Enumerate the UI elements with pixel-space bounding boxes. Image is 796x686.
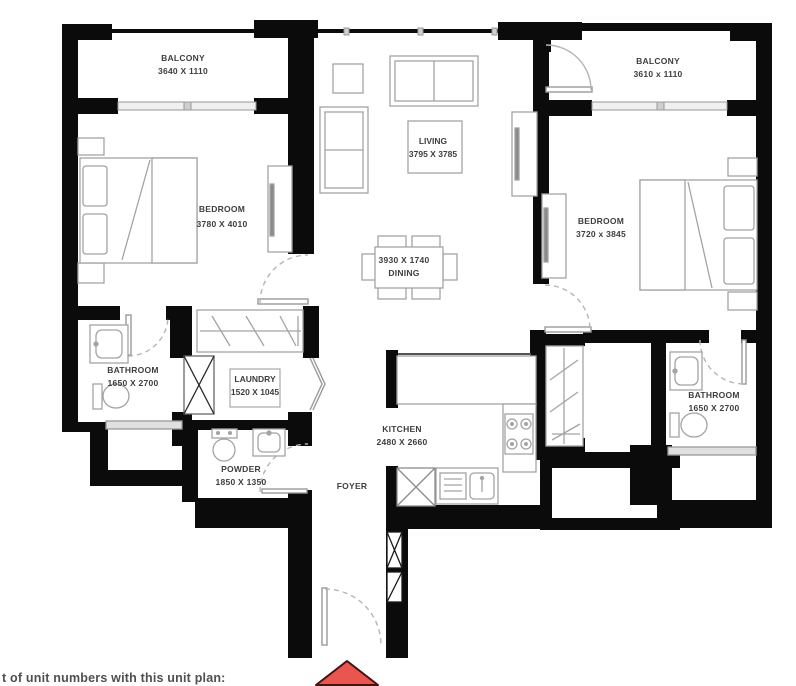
room-name: BEDROOM (197, 202, 248, 217)
room-name: FOYER (337, 480, 368, 493)
window-mullion (492, 28, 497, 35)
room-label-powder: POWDER 1850 X 1350 (216, 463, 267, 489)
room-label-dining: 3930 X 1740 DINING (379, 254, 430, 280)
door-bathroom-left (126, 315, 168, 356)
room-dims: 1650 X 2700 (688, 402, 739, 415)
room-label-living: LIVING 3795 X 3785 (409, 135, 457, 161)
room-dims: 3795 X 3785 (409, 148, 457, 161)
window-mullion (344, 28, 349, 35)
room-dims: 1650 X 2700 (107, 377, 158, 390)
door-laundry-bifold (310, 358, 325, 410)
room-label-bathroom-right: BATHROOM 1650 X 2700 (688, 389, 739, 415)
dresser-tv-icon-right (542, 194, 566, 278)
shower-screen-left (106, 421, 182, 429)
fridge-icon (397, 468, 435, 506)
toilet-icon-bathroom-right (670, 413, 707, 437)
room-name: LIVING (409, 135, 457, 148)
room-label-laundry: LAUNDRY 1520 X 1045 (231, 373, 279, 399)
footer-note: t of unit numbers with this unit plan: (2, 670, 226, 686)
sink-icon-powder (253, 429, 285, 456)
window-mullion (418, 28, 423, 35)
room-label-foyer: FOYER (337, 480, 368, 493)
room-name: BALCONY (633, 55, 682, 68)
room-name: BALCONY (158, 52, 208, 65)
room-name: LAUNDRY (231, 373, 279, 386)
bed-icon-right (640, 158, 757, 310)
room-name: BEDROOM (576, 215, 626, 228)
room-dims: 1520 X 1045 (231, 386, 279, 399)
room-dims: 2480 X 2660 (377, 436, 428, 449)
sink-icon-bathroom-right (670, 352, 702, 390)
dresser-tv-icon-left (268, 166, 292, 252)
walls-layer (62, 20, 772, 658)
shower-screen-right (668, 447, 756, 455)
wardrobe-icon (546, 346, 583, 446)
room-label-bedroom-left: BEDROOM 3780 X 4010 (197, 202, 248, 232)
room-name: DINING (379, 267, 430, 280)
room-name: BATHROOM (107, 364, 158, 377)
toilet-icon-powder (212, 429, 237, 461)
sink-icon-bathroom-left (90, 325, 128, 363)
floorplan: BALCONY 3640 X 1110 BALCONY 3610 x 1110 … (0, 0, 796, 686)
washer-icon (184, 356, 214, 414)
room-dims: 1850 X 1350 (216, 476, 267, 489)
door-bathroom-right (700, 340, 746, 384)
room-name: KITCHEN (377, 423, 428, 436)
room-dims: 3780 X 4010 (197, 217, 248, 232)
room-dims: 3640 X 1110 (158, 65, 208, 78)
door-bedroom-right (545, 285, 591, 332)
room-name: POWDER (216, 463, 267, 476)
shaft-icon (387, 532, 402, 602)
tv-unit-icon-living (512, 112, 537, 196)
room-dims: 3930 X 1740 (379, 254, 430, 267)
floorplan-canvas (0, 0, 796, 686)
side-table-icon (333, 64, 363, 93)
room-label-bedroom-right: BEDROOM 3720 x 3845 (576, 215, 626, 241)
entry-arrow-icon (316, 661, 378, 685)
door-balcony-right (546, 45, 592, 92)
room-label-balcony-left: BALCONY 3640 X 1110 (158, 52, 208, 78)
room-dims: 3610 x 1110 (633, 68, 682, 81)
room-label-bathroom-left: BATHROOM 1650 X 2700 (107, 364, 158, 390)
room-name: BATHROOM (688, 389, 739, 402)
sofa-icon (390, 56, 478, 106)
closet-icon (197, 310, 303, 352)
door-entry (322, 588, 381, 645)
room-dims: 3720 x 3845 (576, 228, 626, 241)
bed-icon-left (78, 138, 197, 283)
room-label-kitchen: KITCHEN 2480 X 2660 (377, 423, 428, 449)
kitchen-sink-icon (436, 468, 498, 504)
stove-icon (505, 414, 533, 454)
door-bedroom-left (258, 255, 308, 304)
armchair-icon (320, 107, 368, 193)
room-label-balcony-right: BALCONY 3610 x 1110 (633, 55, 682, 81)
